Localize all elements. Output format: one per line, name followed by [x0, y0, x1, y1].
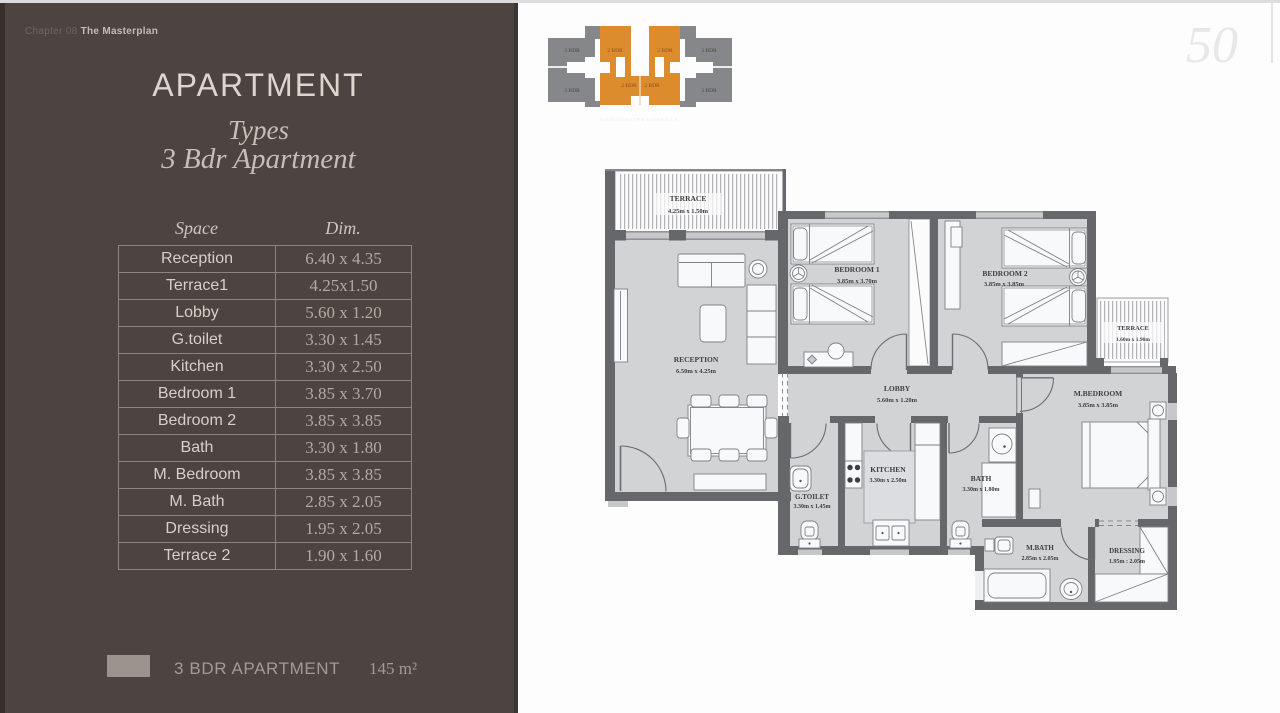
svg-text:3.30m x 1.45m: 3.30m x 1.45m [794, 504, 831, 510]
svg-text:2 BDR: 2 BDR [657, 48, 673, 54]
svg-text:3.85m x 3.85m: 3.85m x 3.85m [984, 281, 1025, 288]
svg-text:3 BDR: 3 BDR [564, 48, 580, 54]
svg-text:1.95m : 2.05m: 1.95m : 2.05m [1109, 559, 1145, 565]
svg-text:1.60m x 1.90m: 1.60m x 1.90m [1116, 337, 1150, 343]
svg-text:BATH: BATH [971, 474, 992, 483]
svg-text:2.85m x 2.05m: 2.85m x 2.05m [1022, 556, 1059, 562]
svg-text:2 BDR: 2 BDR [644, 83, 660, 89]
svg-text:6.50m x 4.25m: 6.50m x 4.25m [676, 368, 717, 375]
svg-text:KITCHEN: KITCHEN [870, 465, 906, 474]
svg-text:M.BATH: M.BATH [1026, 544, 1054, 552]
svg-text:G.TOILET: G.TOILET [795, 493, 829, 501]
svg-text:TERRACE: TERRACE [1117, 325, 1149, 332]
svg-text:DRESSING: DRESSING [1109, 547, 1145, 555]
svg-text:3 BDR: 3 BDR [564, 88, 580, 94]
svg-text:3 BDR: 3 BDR [701, 48, 717, 54]
svg-text:3.85m x 3.70m: 3.85m x 3.70m [837, 278, 878, 285]
svg-text:M.BEDROOM: M.BEDROOM [1074, 389, 1123, 398]
svg-text:LOBBY: LOBBY [884, 384, 911, 393]
svg-text:5.60m x 1.20m: 5.60m x 1.20m [877, 397, 918, 404]
svg-text:3.85m x 3.85m: 3.85m x 3.85m [1078, 402, 1119, 409]
svg-text:2 BDR: 2 BDR [607, 48, 623, 54]
svg-text:4.25m x 1.50m: 4.25m x 1.50m [668, 208, 709, 215]
svg-text:3.30m x 1.80m: 3.30m x 1.80m [963, 487, 1000, 493]
svg-text:BEDROOM 2: BEDROOM 2 [982, 269, 1027, 278]
svg-text:2 BDR: 2 BDR [621, 83, 637, 89]
svg-text:S O D I C E A S T R E S I: S O D I C E A S T R E S I D E N C E S [600, 117, 677, 122]
svg-text:3 BDR: 3 BDR [701, 88, 717, 94]
svg-text:RECEPTION: RECEPTION [674, 355, 719, 364]
svg-text:50: 50 [1186, 17, 1238, 74]
svg-text:TERRACE: TERRACE [670, 194, 707, 203]
svg-text:BEDROOM 1: BEDROOM 1 [834, 265, 879, 274]
svg-text:3.30m x 2.50m: 3.30m x 2.50m [870, 478, 907, 484]
